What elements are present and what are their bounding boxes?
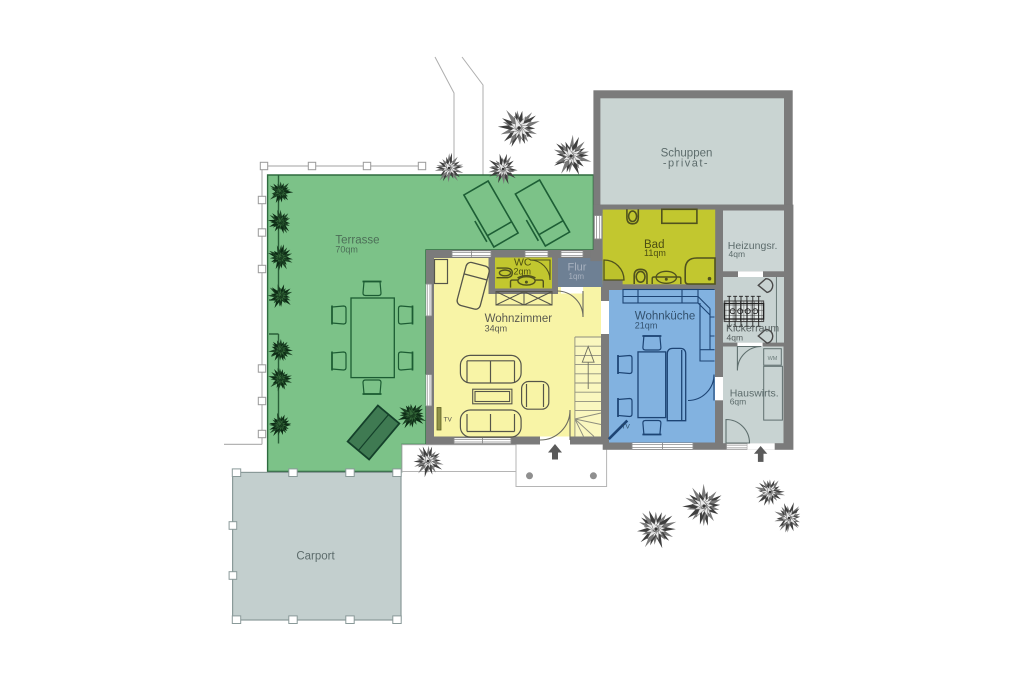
svg-text:6qm: 6qm [730, 397, 747, 407]
svg-text:TV: TV [622, 424, 631, 431]
svg-text:WM: WM [768, 356, 778, 362]
svg-text:4qm: 4qm [727, 333, 744, 343]
svg-text:Carport: Carport [296, 551, 335, 563]
svg-text:70qm: 70qm [335, 245, 358, 255]
svg-text:4qm: 4qm [729, 249, 746, 259]
svg-text:11qm: 11qm [644, 248, 666, 258]
svg-text:-privat-: -privat- [663, 158, 709, 170]
svg-text:1qm: 1qm [569, 272, 585, 281]
svg-text:21qm: 21qm [635, 321, 658, 331]
svg-text:34qm: 34qm [485, 324, 508, 334]
svg-text:2qm: 2qm [514, 267, 532, 277]
svg-text:TV: TV [444, 417, 453, 424]
